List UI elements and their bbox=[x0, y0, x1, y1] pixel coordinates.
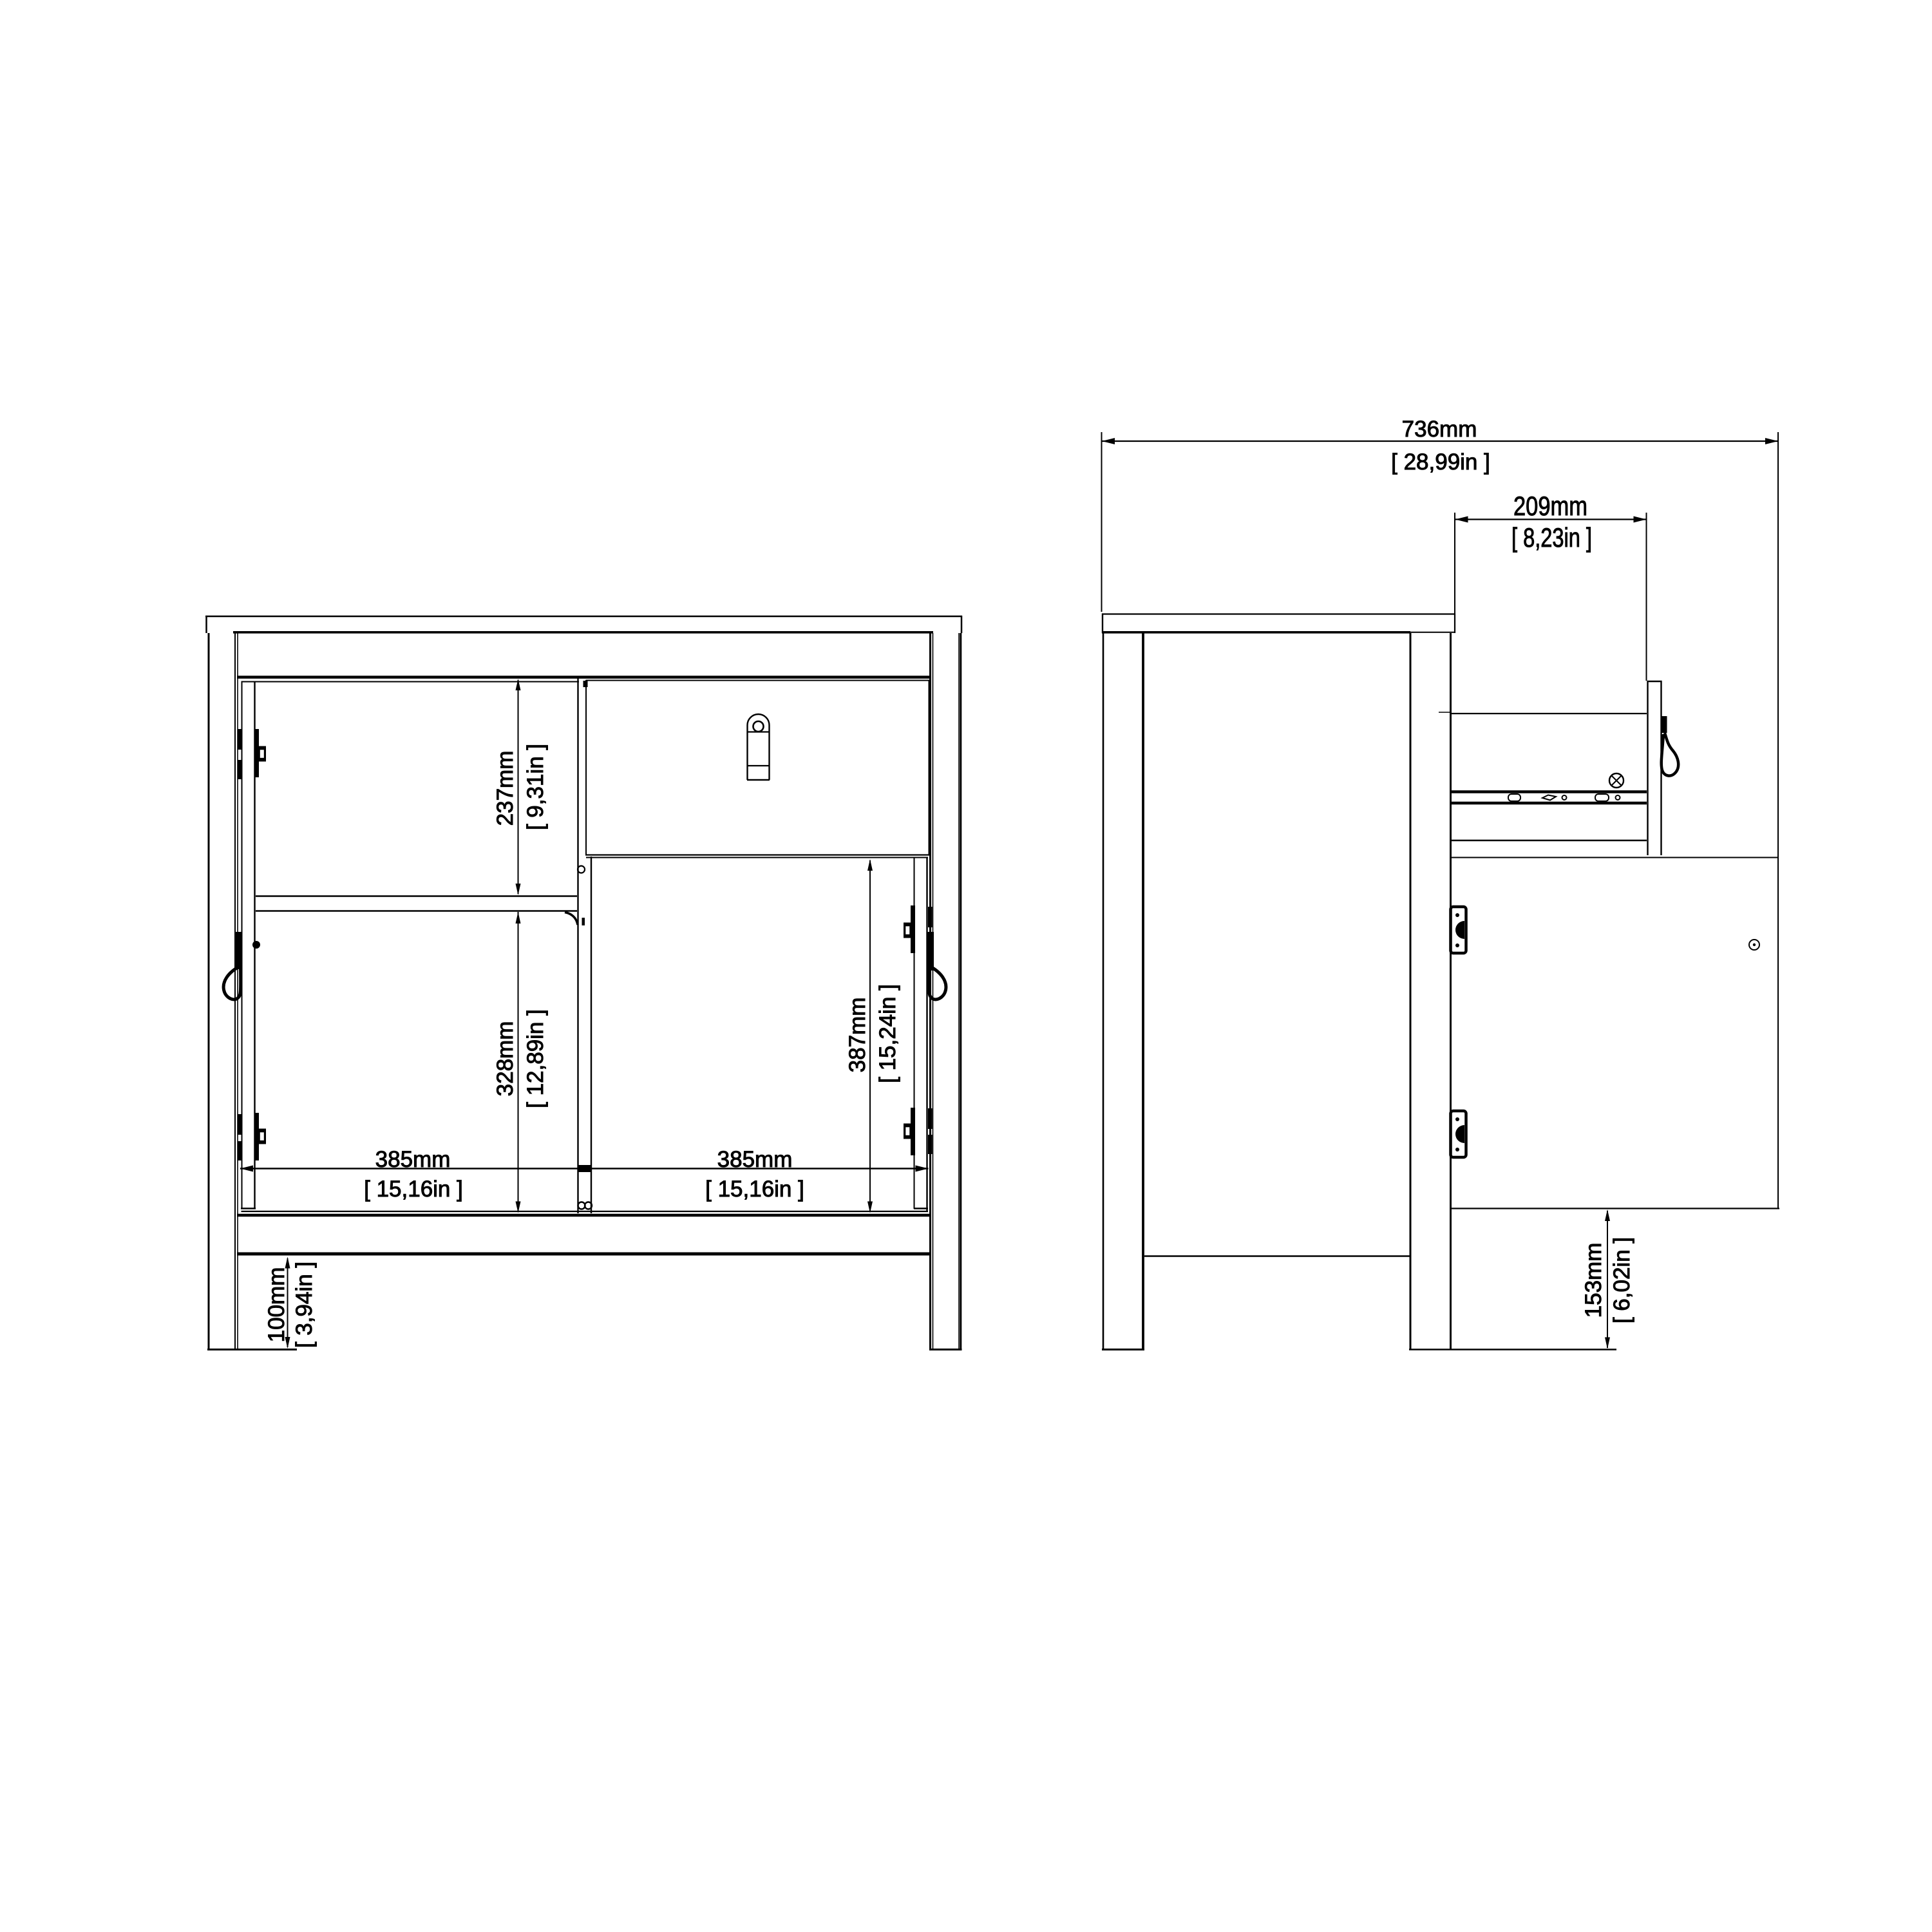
svg-text:100mm: 100mm bbox=[264, 1267, 289, 1343]
svg-text:153mm: 153mm bbox=[1581, 1243, 1606, 1318]
svg-text:[ 28,99in ]: [ 28,99in ] bbox=[1391, 450, 1490, 475]
svg-text:[ 8,23in ]: [ 8,23in ] bbox=[1511, 522, 1592, 553]
svg-text:387mm: 387mm bbox=[845, 998, 870, 1073]
svg-text:[ 6,02in ]: [ 6,02in ] bbox=[1609, 1237, 1634, 1323]
svg-text:[ 15,24in ]: [ 15,24in ] bbox=[875, 984, 900, 1083]
svg-text:[ 15,16in ]: [ 15,16in ] bbox=[364, 1177, 463, 1202]
svg-text:209mm: 209mm bbox=[1513, 491, 1587, 521]
svg-text:[ 15,16in ]: [ 15,16in ] bbox=[705, 1177, 804, 1202]
svg-text:736mm: 736mm bbox=[1402, 417, 1477, 442]
svg-text:385mm: 385mm bbox=[717, 1147, 793, 1172]
svg-text:328mm: 328mm bbox=[493, 1021, 518, 1097]
svg-text:385mm: 385mm bbox=[375, 1147, 451, 1172]
svg-text:[ 3,94in ]: [ 3,94in ] bbox=[292, 1262, 317, 1348]
svg-text:[ 12,89in ]: [ 12,89in ] bbox=[523, 1009, 548, 1108]
svg-text:[ 9,31in ]: [ 9,31in ] bbox=[523, 744, 548, 830]
svg-text:237mm: 237mm bbox=[493, 751, 518, 826]
